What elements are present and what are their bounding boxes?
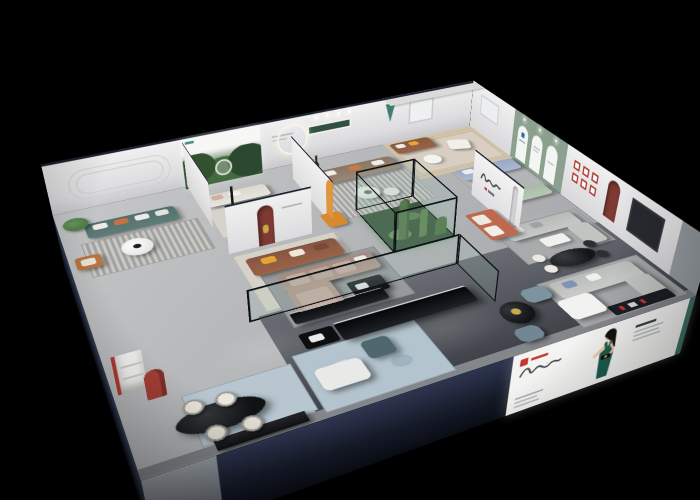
arch-panel	[529, 133, 544, 175]
pillow-white	[134, 213, 150, 221]
arch-text-line	[519, 139, 525, 144]
pillow-orange	[113, 218, 130, 226]
red-art-square	[573, 160, 580, 172]
pillow-orange	[260, 255, 278, 264]
white-armchair	[446, 139, 472, 149]
ceiling-spotlight	[315, 116, 317, 119]
ceiling-spotlight	[326, 114, 328, 117]
pillow-gray	[528, 221, 544, 228]
showroom-render-scene	[0, 0, 700, 500]
slim-arch-niche	[509, 185, 519, 231]
table-decor	[132, 243, 142, 249]
gold-lamp	[263, 224, 269, 234]
chair-cushion	[80, 257, 97, 267]
arch-text-line	[547, 160, 553, 165]
showroom-floorplan	[53, 126, 696, 480]
pillow-orange	[407, 141, 419, 146]
pillow-white	[154, 209, 169, 217]
arch-panel	[515, 123, 529, 164]
red-arch-niche	[603, 178, 622, 223]
red-art-square	[580, 178, 587, 190]
mural-logo-mark	[185, 141, 194, 145]
red-art-square	[591, 172, 599, 185]
arch-panel	[543, 143, 559, 186]
red-art-square	[582, 166, 589, 178]
red-art-square	[589, 184, 597, 197]
shelf-line	[120, 361, 143, 369]
mattress-cushion	[483, 225, 506, 237]
ceiling-spotlight	[348, 110, 350, 113]
red-art-square	[571, 172, 578, 184]
green-slot-window	[307, 118, 351, 136]
mural-chandelier-ring	[214, 158, 232, 177]
red-arch-niche	[257, 204, 276, 248]
ceiling-spotlight	[539, 128, 541, 131]
pillow-white	[584, 273, 602, 282]
ceiling-spotlight	[555, 139, 557, 143]
shelf-line	[123, 372, 146, 380]
white-tray	[308, 333, 326, 343]
wood-room-art	[480, 94, 500, 126]
pillow-blue	[560, 280, 579, 289]
shelf-red-accent	[639, 299, 647, 304]
mattress-cushion	[471, 214, 493, 225]
ceiling-spotlight	[337, 112, 339, 115]
banner-teal-accent	[674, 296, 696, 355]
shelf-white-accent	[627, 302, 638, 308]
arch-logo-square	[521, 132, 525, 139]
table-decor	[509, 307, 523, 315]
shelf-red-accent	[618, 306, 626, 311]
pillow-white	[288, 248, 306, 257]
wall-text-line	[282, 202, 303, 208]
pillow-blush	[210, 194, 224, 201]
pillow-brown	[312, 242, 330, 251]
ceiling-spotlight	[524, 118, 526, 121]
tv-wall-panel	[626, 197, 666, 253]
pillow-white	[394, 144, 406, 149]
pillow-white	[92, 222, 109, 230]
